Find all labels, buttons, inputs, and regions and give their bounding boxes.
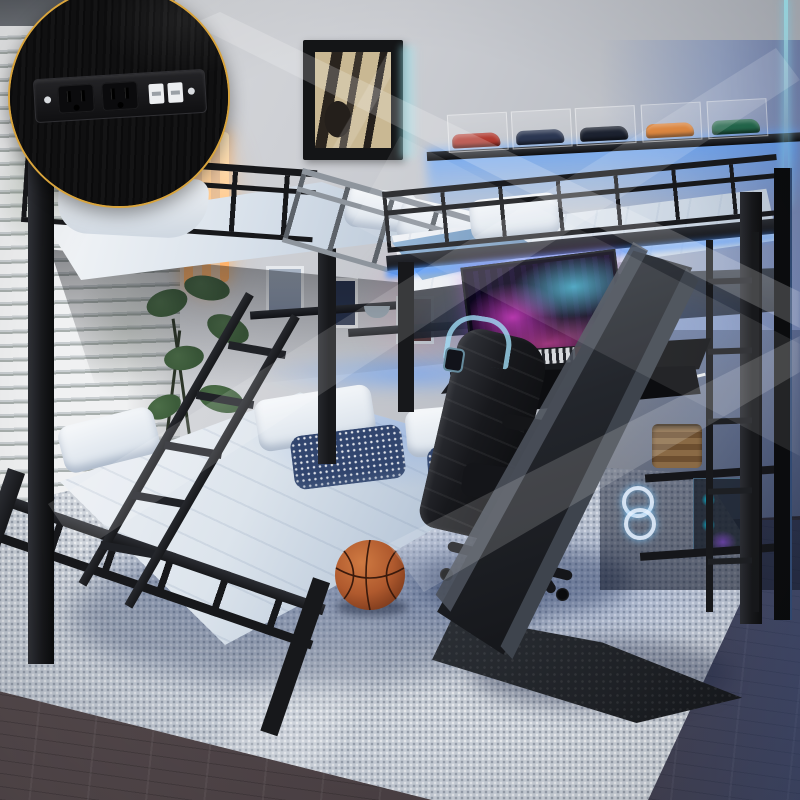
product-photo [0, 0, 800, 800]
outlet-ground-hole [73, 104, 79, 110]
screw [44, 96, 51, 103]
usb-ports [148, 80, 185, 106]
outlet-slot [81, 90, 86, 101]
usb-slot [152, 92, 161, 97]
charging-station-inset [8, 0, 230, 208]
outlet-slot [111, 88, 116, 99]
usb-port [148, 83, 164, 104]
outlet-slot [125, 87, 130, 98]
power-outlet [57, 84, 95, 114]
screw [188, 87, 195, 94]
usb-slot [171, 90, 180, 95]
outlet-slot [67, 91, 72, 102]
outlet-ground-hole [117, 102, 123, 108]
usb-port [167, 82, 183, 103]
power-outlet [101, 81, 139, 111]
